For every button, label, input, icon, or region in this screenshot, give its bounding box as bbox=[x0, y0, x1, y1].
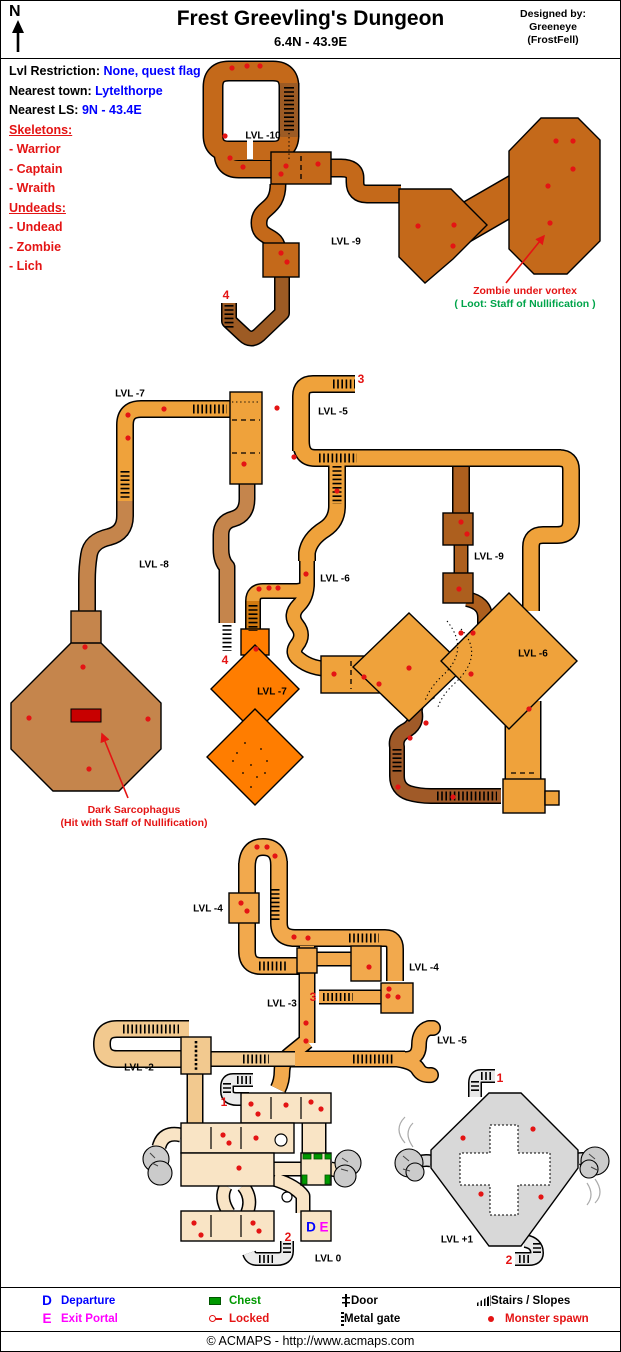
legend-item-stairs: Stairs / Slopes bbox=[477, 1293, 589, 1308]
info-list-item: - Zombie bbox=[9, 238, 201, 258]
legend-label: Door bbox=[351, 1295, 378, 1307]
footer: © ACMAPS - http://www.acmaps.com bbox=[1, 1332, 620, 1352]
designer-name: Greeneye bbox=[498, 21, 608, 34]
legend-item-departure-d: DDeparture bbox=[33, 1293, 201, 1308]
legend-label: Monster spawn bbox=[505, 1313, 589, 1325]
header: N Frest Greevling's Dungeon 6.4N - 43.9E… bbox=[1, 1, 620, 59]
copyright-text: © ACMAPS - http://www.acmaps.com bbox=[207, 1334, 415, 1348]
info-row: Nearest town: Lytelthorpe bbox=[9, 82, 201, 102]
info-row-value: 9N - 43.4E bbox=[82, 103, 142, 117]
legend-label: Exit Portal bbox=[61, 1313, 118, 1325]
door-icon bbox=[341, 1294, 351, 1307]
legend-item-locked-key: Locked bbox=[201, 1311, 341, 1326]
map-section-lvl0 bbox=[143, 1080, 361, 1259]
map-section-top bbox=[213, 71, 600, 339]
info-list-item: - Undead bbox=[9, 218, 201, 238]
info-row-label: Nearest LS: bbox=[9, 103, 82, 117]
info-group-title: Undeads: bbox=[9, 199, 201, 219]
info-list-item: - Lich bbox=[9, 257, 201, 277]
info-row: Lvl Restriction: None, quest flag bbox=[9, 62, 201, 82]
credit-block: Designed by: Greeneye (FrostFell) bbox=[498, 8, 608, 47]
legend: DDepartureEExit PortalChestLockedDoorMet… bbox=[1, 1287, 621, 1332]
info-row-label: Nearest town: bbox=[9, 84, 95, 98]
legend-column: DDepartureEExit Portal bbox=[33, 1293, 201, 1331]
legend-column: DoorMetal gate bbox=[341, 1293, 477, 1331]
legend-column: ChestLocked bbox=[201, 1293, 341, 1331]
map-section-mid-orange bbox=[125, 384, 577, 813]
info-group-title: Skeletons: bbox=[9, 121, 201, 141]
info-row-value: None, quest flag bbox=[103, 64, 200, 78]
locked-key-icon bbox=[201, 1315, 229, 1322]
legend-item-exit-e: EExit Portal bbox=[33, 1311, 201, 1326]
designer-guild: (FrostFell) bbox=[498, 34, 608, 47]
legend-item-chest: Chest bbox=[201, 1293, 341, 1308]
info-block: Lvl Restriction: None, quest flagNearest… bbox=[9, 62, 201, 277]
info-list-item: - Captain bbox=[9, 160, 201, 180]
legend-item-metal-gate: Metal gate bbox=[341, 1311, 477, 1326]
map-section-lvl-plus1 bbox=[395, 1076, 609, 1259]
dungeon-map-page: N Frest Greevling's Dungeon 6.4N - 43.9E… bbox=[0, 0, 621, 1352]
info-row: Nearest LS: 9N - 43.4E bbox=[9, 101, 201, 121]
exit-e-icon: E bbox=[33, 1311, 61, 1326]
departure-d-icon: D bbox=[33, 1293, 61, 1308]
legend-label: Departure bbox=[61, 1295, 115, 1307]
info-list-item: - Warrior bbox=[9, 140, 201, 160]
info-row-value: Lytelthorpe bbox=[95, 84, 163, 98]
legend-label: Stairs / Slopes bbox=[491, 1295, 570, 1307]
chest-icon bbox=[201, 1297, 229, 1305]
legend-label: Locked bbox=[229, 1313, 269, 1325]
stairs-icon bbox=[477, 1295, 491, 1306]
map-section-lvl8 bbox=[11, 484, 247, 791]
legend-item-monster-spawn: Monster spawn bbox=[477, 1311, 589, 1326]
legend-label: Metal gate bbox=[344, 1313, 400, 1325]
map-area: Lvl Restriction: None, quest flagNearest… bbox=[1, 58, 620, 1287]
info-list-item: - Wraith bbox=[9, 179, 201, 199]
legend-label: Chest bbox=[229, 1295, 261, 1307]
monster-spawn-icon bbox=[477, 1316, 505, 1322]
info-row-label: Lvl Restriction: bbox=[9, 64, 103, 78]
legend-column: Stairs / SlopesMonster spawn bbox=[477, 1293, 589, 1331]
designed-by-label: Designed by: bbox=[498, 8, 608, 21]
legend-item-door: Door bbox=[341, 1293, 477, 1308]
map-section-lvl7-room bbox=[207, 601, 303, 805]
